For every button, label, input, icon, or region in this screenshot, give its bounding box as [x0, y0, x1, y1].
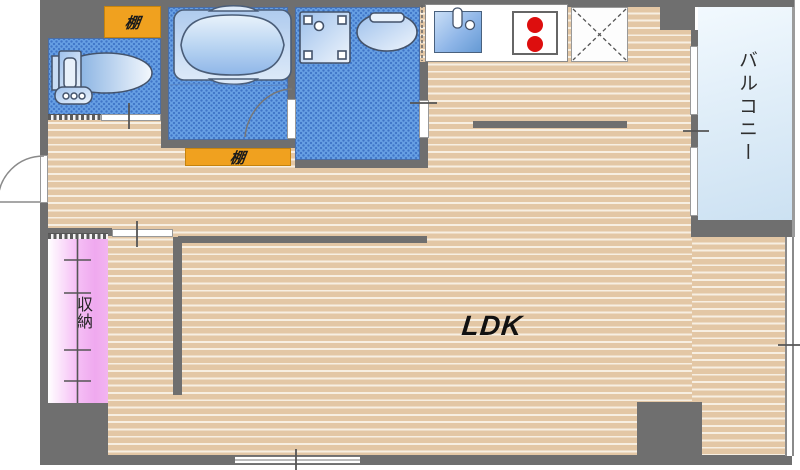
floor-plan: 棚 棚 収納 LDK バルコニー [0, 0, 800, 470]
entry-door-swing [0, 156, 44, 202]
toilet-room [48, 38, 161, 115]
shelf-bottom: 棚 [185, 148, 291, 166]
washroom-door-opening [419, 100, 429, 138]
ldk-label: LDK [460, 310, 524, 342]
washroom [295, 7, 420, 160]
entry-door-leaf [40, 155, 48, 203]
storage-label: 収納 [70, 296, 94, 330]
storage-bottom-block [42, 403, 108, 465]
balcony-bottom-wall [691, 220, 792, 237]
left-wall [40, 7, 48, 465]
top-right-wall-block [660, 0, 695, 30]
balcony-label: バルコニー [733, 50, 760, 165]
balcony-outer-rail [792, 0, 795, 237]
toilet-sliding-door [101, 114, 161, 121]
ldk-wood-floor-right [692, 237, 785, 455]
balcony-door-panel-2 [690, 147, 698, 216]
top-left-wall-block [48, 7, 105, 38]
refrigerator-space [571, 7, 628, 62]
bathroom [168, 7, 288, 140]
bottom-right-pillar [637, 402, 702, 458]
toilet-bath-wall [161, 6, 168, 148]
toilet-folding-door [48, 114, 103, 120]
kitchen-island-counter [473, 121, 627, 128]
shelf-top: 棚 [104, 6, 161, 38]
stove [512, 11, 558, 55]
shelf-bottom-label: 棚 [229, 147, 247, 168]
ldk-partition-horizontal [178, 236, 427, 243]
hall-sliding-door [112, 229, 173, 237]
kitchen-sink [434, 11, 482, 53]
balcony-door-panel-1 [690, 46, 698, 115]
bathroom-door-opening [287, 99, 296, 139]
ldk-partition-vertical [173, 237, 182, 395]
right-window [785, 237, 794, 456]
washroom-bottom-wall [295, 160, 428, 168]
shelf-top-label: 棚 [124, 12, 142, 33]
bottom-window [235, 456, 360, 464]
